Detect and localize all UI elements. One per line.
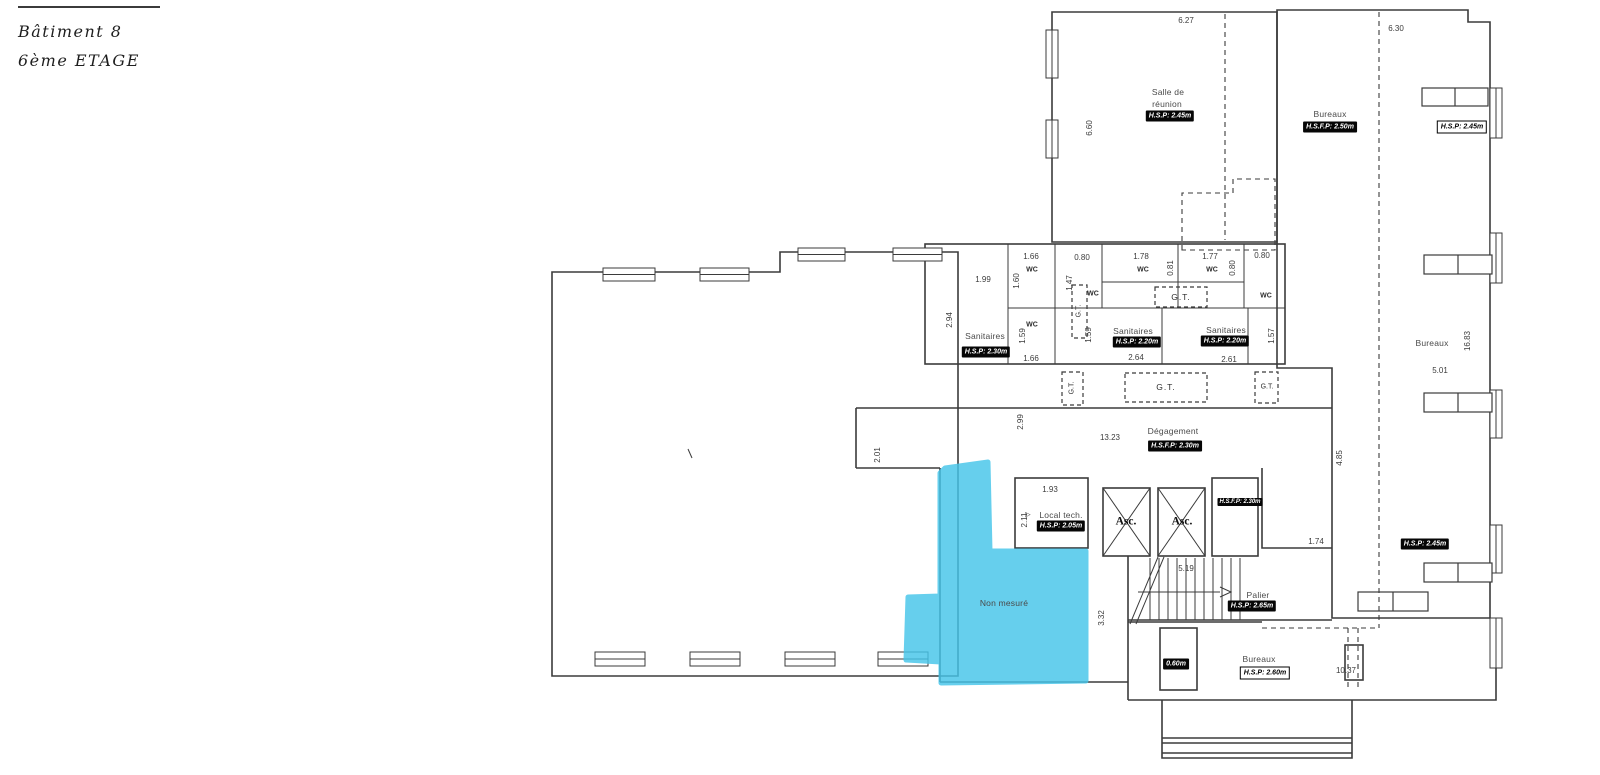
gt-label-corridor-left: G.T. [1069,382,1076,395]
badge-0-60m: 0.60m [1163,659,1189,670]
dim-1-57: 1.57 [1268,328,1276,344]
labels-layer: 6.276.606.301.992.941.661.600.801.471.78… [0,0,1600,775]
room-bureaux-top: Bureaux [1313,110,1346,119]
dim-3-32: 3.32 [1098,610,1106,626]
wc-label-a: WC [1026,267,1038,274]
badge-bureaux-right: H.S.P: 2.45m [1401,539,1449,550]
elevator-label-2: Asc. [1172,516,1193,528]
dim-1-77: 1.77 [1202,253,1218,261]
gt-label-wc-row: G.T. [1171,293,1191,302]
gt-label-corridor-mid: G.T. [1156,383,1176,392]
door-arrow-local-tech: ▷ [1025,512,1030,519]
room-palier: Palier [1247,591,1270,600]
dim-2-64: 2.64 [1128,354,1144,362]
elevator-label-1: Asc. [1116,516,1137,528]
room-sanitaires-mid: Sanitaires [1113,327,1153,336]
dim-2-94: 2.94 [946,312,954,328]
dim-6-27: 6.27 [1178,17,1194,25]
room-bureaux-bottom: Bureaux [1242,655,1275,664]
room-sanitaires-left: Sanitaires [965,332,1005,341]
badge-bureaux-top-right: H.S.P: 2.45m [1437,121,1487,134]
dim-4-85: 4.85 [1336,450,1344,466]
badge-sanitaires-right: H.S.P: 2.20m [1201,336,1249,347]
dim-0-80-c: 0.80 [1254,252,1270,260]
badge-palier: H.S.P: 2.65m [1228,601,1276,612]
wc-label-b: WC [1087,291,1099,298]
dim-1-59-b: 1.59 [1085,327,1093,343]
gt-label-corridor-right: G.T. [1261,384,1274,391]
room-salle-de-reunion-line1: Salle de [1152,88,1184,97]
dim-6-60: 6.60 [1086,120,1094,136]
wc-label-c: WC [1137,267,1149,274]
badge-sanitaires-mid: H.S.P: 2.20m [1113,337,1161,348]
dim-1-60: 1.60 [1013,273,1021,289]
wc-label-e: WC [1260,293,1272,300]
dim-5-01: 5.01 [1432,367,1448,375]
dim-5-19: 5.19 [1178,565,1194,573]
room-non-mesure: Non mesuré [980,599,1028,608]
dim-1-74: 1.74 [1308,538,1324,546]
badge-sanitaires-left: H.S.P: 2.30m [962,347,1010,358]
dim-2-61: 2.61 [1221,356,1237,364]
dim-1-59-a: 1.59 [1019,328,1027,344]
room-bureaux-right: Bureaux [1415,339,1448,348]
floor-plan-page: { "title": { "building": "Bâtiment 8", "… [0,0,1600,775]
dim-0-80-a: 0.80 [1074,254,1090,262]
dim-0-81: 0.81 [1167,260,1175,276]
dim-0-80-b: 0.80 [1229,260,1237,276]
badge-bureaux-top: H.S.F.P: 2.50m [1303,122,1357,133]
dim-1-47: 1.47 [1066,275,1074,291]
room-sanitaires-right: Sanitaires [1206,326,1246,335]
dim-13-23: 13.23 [1100,434,1120,442]
dim-1-66-bottom: 1.66 [1023,355,1039,363]
badge-asc-corridor: H.S.F.P: 2.30m [1217,498,1262,506]
room-salle-de-reunion-line2: réunion [1152,100,1182,109]
dim-6-30: 6.30 [1388,25,1404,33]
room-degagement: Dégagement [1148,427,1199,436]
dim-2-99: 2.99 [1017,414,1025,430]
wc-label-f: WC [1026,322,1038,329]
dim-1-99: 1.99 [975,276,991,284]
wc-label-d: WC [1206,267,1218,274]
badge-local-tech: H.S.P: 2.05m [1037,521,1085,532]
badge-bureaux-bottom: H.S.P: 2.60m [1240,667,1290,680]
dim-1-78: 1.78 [1133,253,1149,261]
dim-16-83: 16.83 [1464,331,1472,351]
badge-salle-de-reunion: H.S.P: 2.45m [1146,111,1194,122]
dim-10-37: 10.37 [1336,667,1356,675]
dim-1-66-top: 1.66 [1023,253,1039,261]
dim-1-93: 1.93 [1042,486,1058,494]
badge-degagement: H.S.F.P: 2.30m [1148,441,1202,452]
gt-label-wc-vertical: G.T. [1076,305,1083,318]
dim-2-01: 2.01 [874,447,882,463]
room-local-tech: Local tech. [1039,511,1082,520]
